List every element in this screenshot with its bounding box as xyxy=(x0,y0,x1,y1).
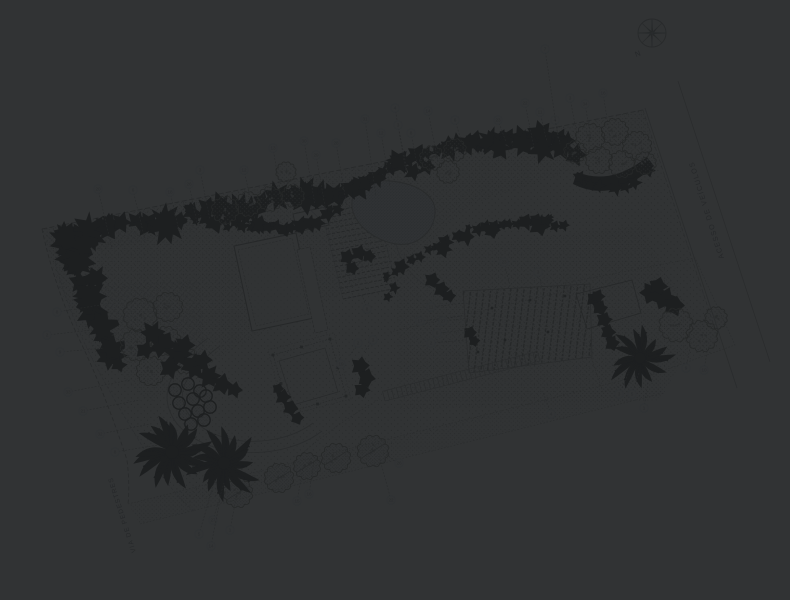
svg-text:23: 23 xyxy=(495,118,501,123)
svg-text:5: 5 xyxy=(631,392,634,397)
svg-text:27: 27 xyxy=(440,319,446,324)
svg-text:3: 3 xyxy=(199,168,202,173)
svg-text:32: 32 xyxy=(97,432,103,437)
svg-text:19: 19 xyxy=(338,362,344,367)
svg-text:3: 3 xyxy=(397,123,400,128)
svg-text:34: 34 xyxy=(582,102,588,107)
svg-text:7: 7 xyxy=(544,47,547,52)
svg-text:6: 6 xyxy=(454,118,457,123)
svg-text:31: 31 xyxy=(362,117,368,122)
svg-text:20: 20 xyxy=(95,187,101,192)
svg-text:17: 17 xyxy=(417,319,423,324)
svg-text:5: 5 xyxy=(198,532,201,537)
svg-text:15: 15 xyxy=(294,499,300,504)
svg-text:3: 3 xyxy=(618,392,621,397)
svg-text:30: 30 xyxy=(301,139,307,144)
svg-text:16: 16 xyxy=(600,91,606,96)
svg-text:10: 10 xyxy=(701,368,707,373)
svg-text:11: 11 xyxy=(429,305,434,310)
svg-text:23: 23 xyxy=(501,260,507,265)
svg-text:4: 4 xyxy=(550,412,553,417)
svg-text:8: 8 xyxy=(410,131,413,136)
svg-text:3: 3 xyxy=(372,338,375,343)
svg-text:6: 6 xyxy=(436,331,439,336)
svg-text:18: 18 xyxy=(167,190,173,195)
svg-text:13: 13 xyxy=(270,146,276,151)
svg-text:1: 1 xyxy=(643,406,646,411)
svg-text:8: 8 xyxy=(366,307,369,312)
svg-text:8: 8 xyxy=(56,310,59,315)
svg-text:16: 16 xyxy=(306,492,312,497)
svg-text:1: 1 xyxy=(229,528,232,533)
svg-text:14: 14 xyxy=(208,544,214,549)
svg-text:2: 2 xyxy=(46,333,49,338)
svg-text:4: 4 xyxy=(394,106,397,111)
svg-text:2: 2 xyxy=(430,341,433,346)
svg-text:29: 29 xyxy=(313,153,319,158)
svg-text:21: 21 xyxy=(80,409,86,414)
svg-text:26: 26 xyxy=(186,182,192,187)
svg-text:2: 2 xyxy=(357,341,360,346)
svg-text:6: 6 xyxy=(132,188,135,193)
svg-text:26: 26 xyxy=(396,461,402,466)
svg-text:28: 28 xyxy=(333,141,339,146)
svg-text:22: 22 xyxy=(388,498,394,503)
svg-text:14: 14 xyxy=(425,109,431,114)
svg-text:22: 22 xyxy=(522,101,528,106)
svg-text:12: 12 xyxy=(241,168,247,173)
svg-text:33: 33 xyxy=(65,390,71,395)
svg-text:3: 3 xyxy=(537,270,540,275)
svg-text:27: 27 xyxy=(210,518,216,523)
svg-text:9: 9 xyxy=(685,366,688,371)
svg-text:11: 11 xyxy=(538,110,543,115)
svg-text:9: 9 xyxy=(59,350,62,355)
svg-text:3: 3 xyxy=(569,96,572,101)
svg-text:8: 8 xyxy=(114,450,117,455)
svg-text:12: 12 xyxy=(378,131,384,136)
